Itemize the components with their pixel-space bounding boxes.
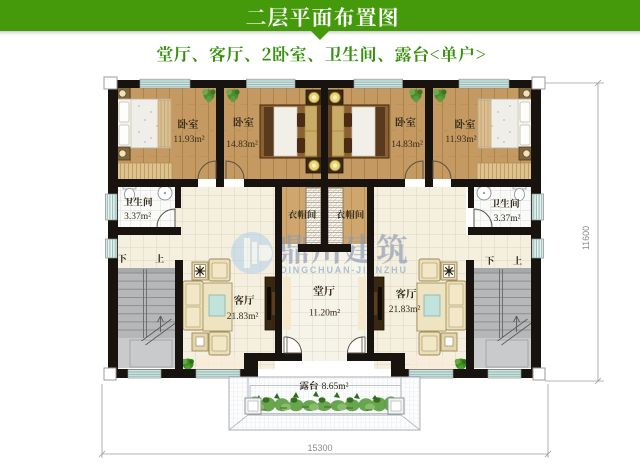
svg-text:14.83m²: 14.83m² xyxy=(391,140,423,150)
svg-text:15300: 15300 xyxy=(307,443,332,453)
svg-text:14.83m²: 14.83m² xyxy=(226,140,258,150)
svg-text:8.65m²: 8.65m² xyxy=(322,382,349,392)
svg-text:11.93m²: 11.93m² xyxy=(173,135,204,145)
svg-text:21.83m²: 21.83m² xyxy=(389,305,421,315)
svg-text:DINGCHUAN-JIANZHU: DINGCHUAN-JIANZHU xyxy=(280,265,408,275)
svg-text:11600: 11600 xyxy=(581,226,591,250)
svg-text:21.83m²: 21.83m² xyxy=(227,312,259,322)
svg-text:11.93m²: 11.93m² xyxy=(445,135,476,145)
svg-text:3.37m²: 3.37m² xyxy=(494,214,521,224)
svg-text:11.20m²: 11.20m² xyxy=(309,309,340,319)
svg-text:3.37m²: 3.37m² xyxy=(124,212,151,222)
